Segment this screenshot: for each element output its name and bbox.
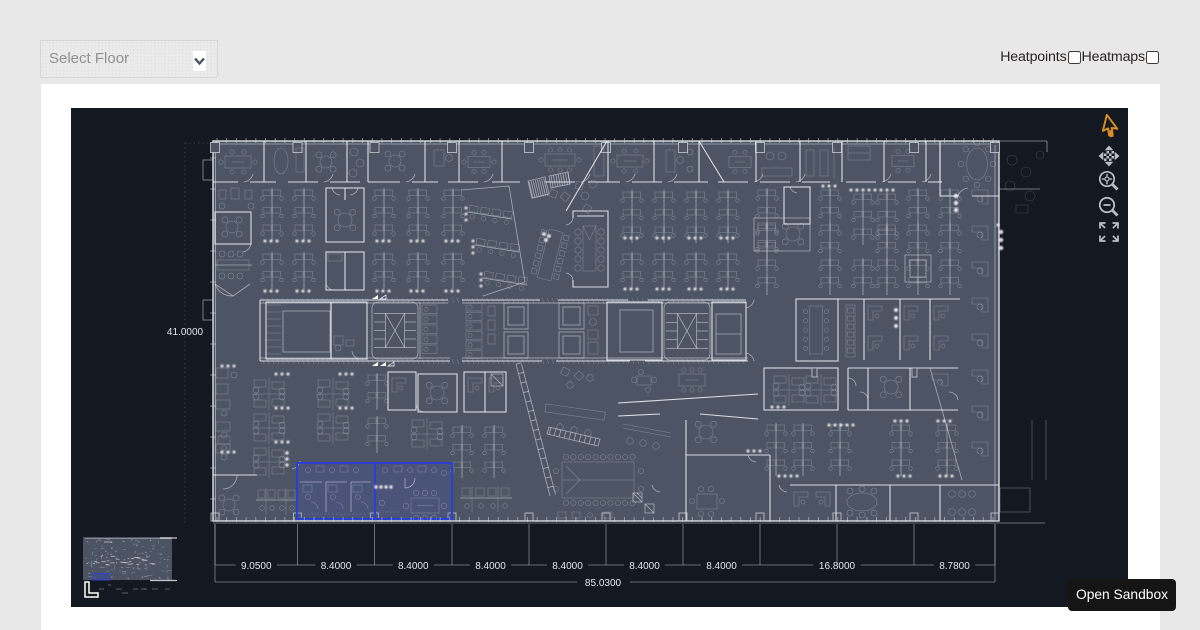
- svg-text:8.7800: 8.7800: [939, 561, 970, 572]
- svg-text:9.0500: 9.0500: [241, 561, 272, 572]
- svg-text:8.4000: 8.4000: [629, 561, 660, 572]
- svg-text:8.4000: 8.4000: [398, 561, 429, 572]
- svg-text:85.0300: 85.0300: [585, 578, 622, 589]
- svg-text:8.4000: 8.4000: [552, 561, 583, 572]
- svg-text:41.0000: 41.0000: [167, 327, 204, 338]
- svg-text:8.4000: 8.4000: [475, 561, 506, 572]
- svg-text:16.8000: 16.8000: [819, 561, 856, 572]
- svg-text:8.4000: 8.4000: [321, 561, 352, 572]
- svg-text:8.4000: 8.4000: [706, 561, 737, 572]
